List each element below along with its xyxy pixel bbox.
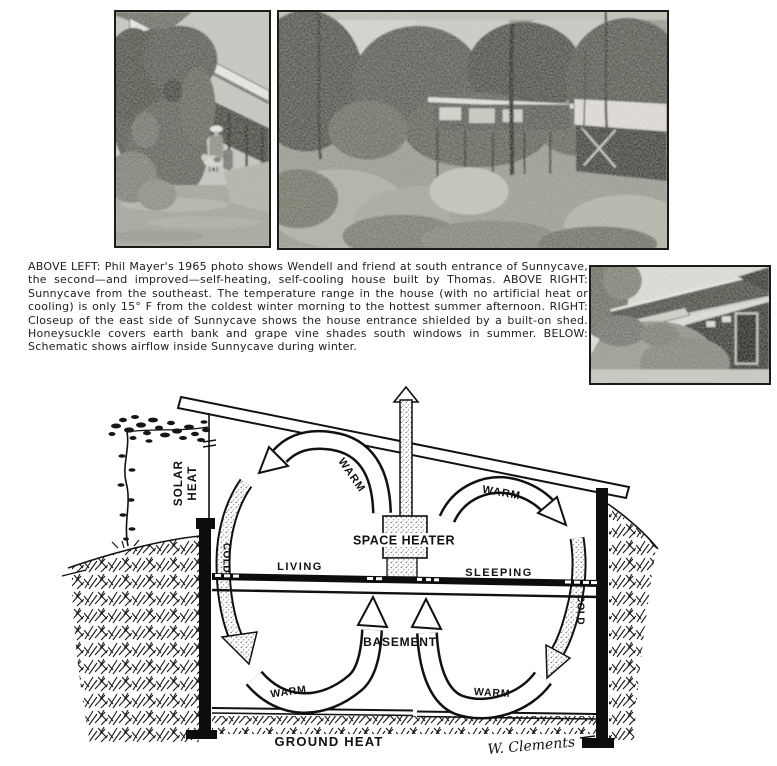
winter-airflow-schematic: SOLAR HEAT WARM WARM COLD COLD SPACE HEA… bbox=[60, 386, 770, 766]
artist-signature: W. Clements bbox=[487, 734, 576, 758]
caption-line-6: Honeysuckle covers earth bank and grape … bbox=[28, 327, 588, 340]
caption-line-5: Closeup of the east side of Sunnycave sh… bbox=[28, 314, 588, 327]
earth-bank-right bbox=[608, 504, 658, 740]
cold-label-right: COLD bbox=[575, 595, 586, 625]
main-floor bbox=[212, 573, 600, 597]
caption-line-7: Schematic shows airflow inside Sunnycave… bbox=[28, 340, 588, 353]
photo2-grain bbox=[279, 12, 667, 248]
photo-above-right-image bbox=[279, 12, 667, 248]
signature-flourish bbox=[580, 736, 595, 738]
space-heater-label: SPACE HEATER bbox=[353, 534, 455, 548]
caption-line-1: ABOVE LEFT: Phil Mayer's 1965 photo show… bbox=[28, 260, 588, 273]
solar-heat-label-line2: HEAT bbox=[187, 465, 199, 500]
photo-right-closeup bbox=[589, 265, 771, 385]
photo1-grain bbox=[116, 12, 269, 246]
ground-heat-label: GROUND HEAT bbox=[274, 734, 383, 749]
schematic-svg: SOLAR HEAT WARM WARM COLD COLD SPACE HEA… bbox=[60, 386, 770, 766]
caption-line-3: Sunnycave from the southeast. The temper… bbox=[28, 287, 588, 300]
basement-label: BASEMENT bbox=[363, 635, 437, 649]
caption-line-2: the second—and improved—self-heating, se… bbox=[28, 273, 588, 286]
photo-above-right bbox=[277, 10, 669, 250]
photo-above-left-image bbox=[116, 12, 269, 246]
magazine-page: ABOVE LEFT: Phil Mayer's 1965 photo show… bbox=[0, 0, 777, 766]
warm-label-basement-right: WARM bbox=[474, 686, 511, 700]
cold-air-arrow-right bbox=[546, 538, 579, 678]
earth-bank-left bbox=[62, 536, 200, 743]
sleeping-label: SLEEPING bbox=[465, 567, 533, 579]
solar-heat-label-line1: SOLAR bbox=[173, 460, 185, 506]
photo3-grain bbox=[591, 267, 769, 383]
caption-block: ABOVE LEFT: Phil Mayer's 1965 photo show… bbox=[28, 260, 588, 354]
photo-right-closeup-image bbox=[591, 267, 769, 383]
warm-arrow-top-left bbox=[259, 440, 382, 513]
living-label: LIVING bbox=[277, 561, 323, 573]
cold-label-left: COLD bbox=[221, 543, 232, 573]
photo-above-left bbox=[114, 10, 271, 248]
caption-line-4: cooling) is only 15° F from the coldest … bbox=[28, 300, 588, 313]
